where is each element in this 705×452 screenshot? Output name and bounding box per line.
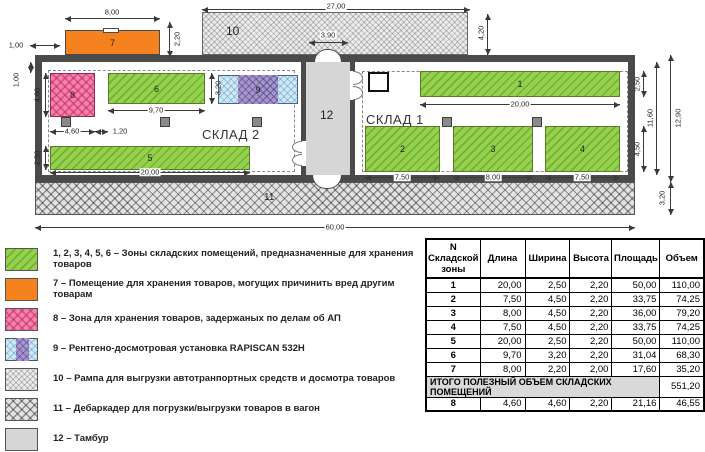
legend-text: 9 – Рентгено-досмотровая установка RAPIS…	[53, 344, 305, 355]
table-header-row: N Складской зоны Длина Ширина Высота Пло…	[426, 239, 704, 278]
dim-line	[643, 126, 644, 172]
sklad2-title: СКЛАД 2	[202, 127, 260, 142]
dim-label: 8,00	[485, 173, 502, 181]
pink-zone-swatch	[5, 308, 38, 331]
cell: 21,16	[612, 397, 660, 411]
table-row: 4 7,50 4,50 2,20 33,75 74,25	[426, 320, 704, 334]
cell: 20,00	[480, 334, 525, 348]
zone-cell: 7	[426, 362, 480, 376]
cell: 20,00	[480, 278, 525, 292]
legend: 1, 2, 3, 4, 5, 6 – Зоны складских помеще…	[5, 248, 423, 452]
cell: 2,20	[525, 362, 570, 376]
zone-10-label: 10	[226, 24, 239, 38]
cell: 3,20	[525, 348, 570, 362]
dim-label: 8,00	[104, 8, 121, 16]
dim-label: 12,90	[674, 108, 682, 129]
tambour-wall	[350, 100, 355, 175]
col-header-area: Площадь	[612, 239, 660, 278]
legend-text: 1, 2, 3, 4, 5, 6 – Зоны складских помеще…	[53, 249, 423, 271]
cell: 2,00	[570, 362, 612, 376]
cell: 36,00	[612, 306, 660, 320]
cell: 2,50	[525, 278, 570, 292]
dim-line	[95, 131, 108, 132]
tambour-wall	[301, 62, 306, 141]
zone-6-box: 6	[108, 73, 205, 104]
dim-label: 4,60	[33, 87, 41, 104]
legend-item-zone-12: 12 – Тамбур	[5, 428, 423, 451]
cell: 4,50	[525, 292, 570, 306]
cell: 4,50	[525, 306, 570, 320]
cell: 79,20	[660, 306, 704, 320]
cell: 8,00	[480, 306, 525, 320]
orange-zone-swatch	[5, 278, 38, 301]
zone-7-box: 7	[65, 30, 160, 55]
zone-cell: 1	[426, 278, 480, 292]
zone-2-label: 2	[400, 144, 405, 154]
zone-9-label: 9	[255, 85, 260, 95]
dim-line	[670, 182, 671, 215]
cell: 110,00	[660, 278, 704, 292]
tambour-wall	[301, 166, 306, 175]
legend-item-zone-11: 11 – Дебаркадер для погрузки/выгрузки то…	[5, 398, 423, 421]
dim-label: 9,70	[148, 106, 165, 114]
legend-text: 7 – Помещение для хранения товаров, могу…	[53, 279, 423, 301]
cell: 7,50	[480, 292, 525, 306]
dim-line	[309, 42, 348, 43]
cell: 50,00	[612, 278, 660, 292]
legend-item-zone-9: 9 – Рентгено-досмотровая установка RAPIS…	[5, 338, 423, 361]
dim-line	[45, 146, 46, 170]
dim-label: 4,50	[633, 141, 641, 158]
green-zone-swatch	[5, 248, 38, 271]
xray-swatch-center	[16, 338, 29, 361]
cell: 7,50	[480, 320, 525, 334]
zone-2-box: 2	[365, 126, 440, 172]
table-row: 7 8,00 2,20 2,00 17,60 35,20	[426, 362, 704, 376]
cell: 2,20	[570, 306, 612, 320]
dim-label: 20,00	[510, 100, 531, 108]
dim-line	[30, 45, 60, 46]
legend-item-zones-1-6: 1, 2, 3, 4, 5, 6 – Зоны складских помеще…	[5, 248, 423, 271]
zone-8-label: 8	[70, 90, 75, 100]
legend-item-zone-8: 8 – Зона для хранения товаров, задержаны…	[5, 308, 423, 331]
floor-plan: 10 7 11 12 1 2 3	[0, 0, 705, 236]
table-total-row: ИТОГО ПОЛЕЗНЫЙ ОБЪЕМ СКЛАДСКИХ ПОМЕЩЕНИЙ…	[426, 376, 704, 397]
zone-1-box: 1	[420, 71, 620, 97]
cell: 74,25	[660, 292, 704, 306]
zone-12-label: 12	[320, 108, 333, 122]
legend-text: 10 – Рампа для выгрузки автотранпортных …	[53, 374, 395, 385]
dim-label: 11,60	[646, 108, 654, 128]
table-row: 5 20,00 2,50 2,20 50,00 110,00	[426, 334, 704, 348]
zone-4-label: 4	[580, 144, 585, 154]
zone-cell: 4	[426, 320, 480, 334]
dim-line	[656, 62, 657, 175]
dim-line	[211, 73, 212, 104]
zone-cell: 3	[426, 306, 480, 320]
dim-label: 4,20	[477, 25, 485, 42]
cell: 17,60	[612, 362, 660, 376]
zone-1-label: 1	[517, 79, 522, 89]
cell: 68,30	[660, 348, 704, 362]
cell: 8,00	[480, 362, 525, 376]
cell: 2,20	[570, 397, 612, 411]
col-header-length: Длина	[480, 239, 525, 278]
dim-label: 1,00	[12, 72, 20, 89]
dim-label: 60,00	[325, 223, 346, 231]
zone-7-label: 7	[110, 38, 115, 48]
tambour-swatch	[5, 428, 38, 451]
xray-unit-9: 9	[218, 75, 298, 104]
dim-line	[643, 71, 644, 97]
col-header-width: Ширина	[525, 239, 570, 278]
dim-label: 3,90	[320, 31, 337, 39]
table-row: 2 7,50 4,50 2,20 33,75 74,25	[426, 292, 704, 306]
equipment-square	[368, 72, 389, 92]
zone-cell: 2	[426, 292, 480, 306]
zone-3-box: 3	[453, 126, 533, 172]
dim-line	[487, 14, 488, 55]
dim-label: 2,20	[173, 31, 181, 48]
cell: 110,00	[660, 334, 704, 348]
cell: 9,70	[480, 348, 525, 362]
dim-label: 20,00	[140, 168, 161, 176]
dim-label: 1,20	[112, 127, 129, 135]
dim-line	[45, 73, 46, 117]
dim-label: 4,60	[64, 127, 81, 135]
dim-line	[169, 22, 170, 57]
cell: 50,00	[612, 334, 660, 348]
zone-4-box: 4	[545, 126, 620, 172]
zone-11-label: 11	[264, 192, 274, 203]
dim-line	[65, 18, 160, 19]
cell: 2,20	[570, 292, 612, 306]
legend-text: 8 – Зона для хранения товаров, задержаны…	[53, 314, 341, 325]
xray-swatch	[5, 338, 38, 361]
total-value-cell: 551,20	[660, 376, 704, 397]
dock-swatch	[5, 398, 38, 421]
zones-dimensions-table: N Складской зоны Длина Ширина Высота Пло…	[425, 238, 705, 412]
legend-item-zone-7: 7 – Помещение для хранения товаров, могу…	[5, 278, 423, 301]
sklad1-title: СКЛАД 1	[366, 112, 424, 127]
zone-6-label: 6	[154, 84, 159, 94]
cell: 35,20	[660, 362, 704, 376]
cell: 74,25	[660, 320, 704, 334]
dim-label: 3,20	[214, 80, 222, 97]
zone-cell: 8	[426, 397, 480, 411]
column	[252, 117, 262, 127]
warehouse-plan-sheet: 10 7 11 12 1 2 3	[0, 0, 705, 452]
table-row: 3 8,00 4,50 2,20 36,00 79,20	[426, 306, 704, 320]
column	[160, 117, 170, 127]
column	[532, 117, 542, 127]
cell: 46,55	[660, 397, 704, 411]
cell: 2,20	[570, 348, 612, 362]
legend-text: 12 – Тамбур	[53, 434, 109, 445]
zone-5-label: 5	[147, 153, 152, 163]
cell: 2,20	[570, 320, 612, 334]
cell: 33,75	[612, 292, 660, 306]
dim-line	[670, 55, 671, 182]
table-row: 6 9,70 3,20 2,20 31,04 68,30	[426, 348, 704, 362]
zone-3-label: 3	[490, 144, 495, 154]
dim-label: 27,00	[326, 2, 347, 10]
col-header-volume: Объем	[660, 239, 704, 278]
dim-label: 7,50	[394, 173, 411, 181]
cell: 33,75	[612, 320, 660, 334]
legend-item-zone-10: 10 – Рампа для выгрузки автотранпортных …	[5, 368, 423, 391]
cell: 31,04	[612, 348, 660, 362]
cell: 2,20	[570, 278, 612, 292]
ramp-swatch	[5, 368, 38, 391]
zone-cell: 6	[426, 348, 480, 362]
total-label-cell: ИТОГО ПОЛЕЗНЫЙ ОБЪЕМ СКЛАДСКИХ ПОМЕЩЕНИЙ	[426, 376, 660, 397]
zone-8-box: 8	[50, 73, 95, 117]
legend-text: 11 – Дебаркадер для погрузки/выгрузки то…	[53, 404, 320, 415]
dim-label: 2,50	[33, 150, 41, 167]
column	[442, 117, 452, 127]
dim-label: 2,50	[633, 76, 641, 93]
cell: 4,60	[480, 397, 525, 411]
table-row: 1 20,00 2,50 2,20 50,00 110,00	[426, 278, 704, 292]
col-header-zone: N Складской зоны	[426, 239, 480, 278]
cell: 2,50	[525, 334, 570, 348]
tambour-wall	[350, 62, 355, 71]
table-row: 8 4,60 4,60 2,20 21,16 46,55	[426, 397, 704, 411]
dim-label: 3,20	[658, 190, 666, 207]
dim-label: 7,50	[574, 173, 591, 181]
col-header-height: Высота	[570, 239, 612, 278]
cell: 4,60	[525, 397, 570, 411]
cell: 2,20	[570, 334, 612, 348]
dim-label: 1,00	[8, 41, 25, 49]
zone-cell: 5	[426, 334, 480, 348]
dim-line	[30, 62, 31, 73]
cell: 4,50	[525, 320, 570, 334]
zone-7-door-notch	[103, 28, 119, 33]
